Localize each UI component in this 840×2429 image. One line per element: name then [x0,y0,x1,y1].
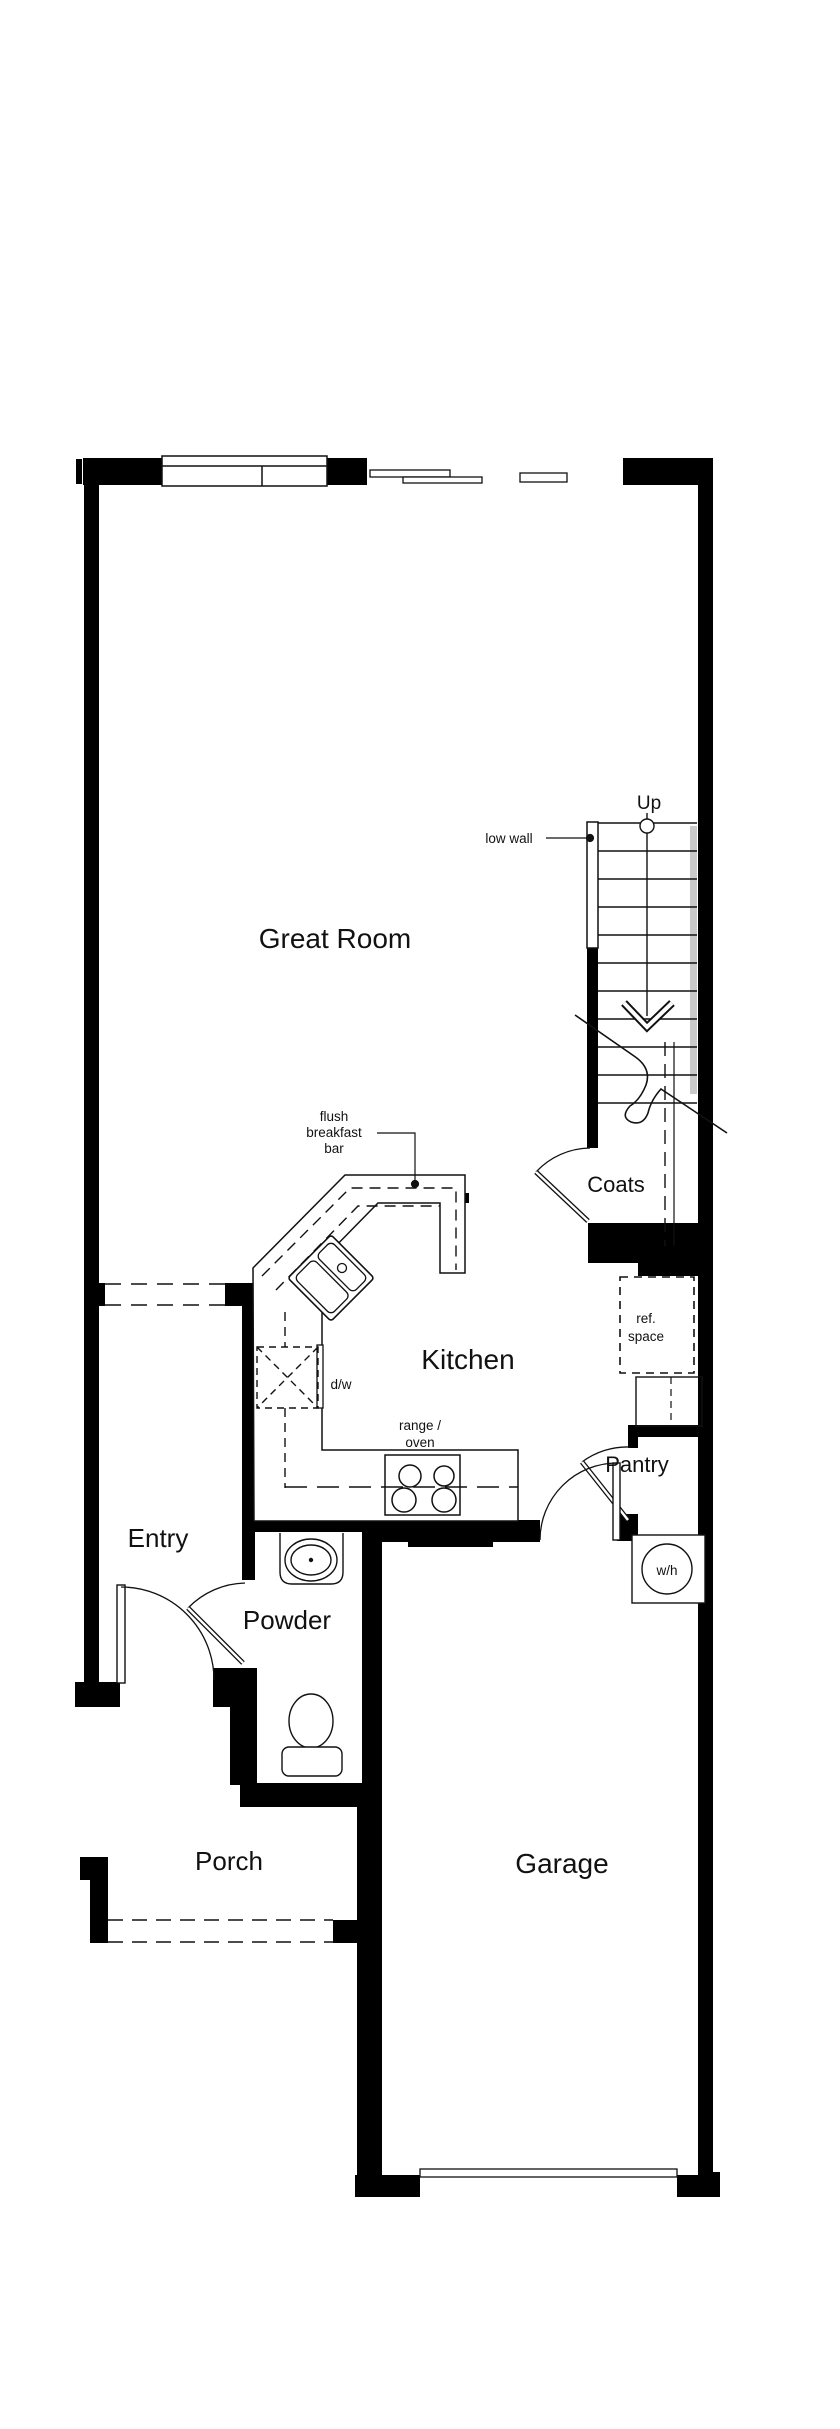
coats-closet [536,1042,674,1246]
breakfast-bar-leader [377,1133,415,1180]
breakfast-bar-leader-dot [412,1181,419,1188]
front-door-leaf [117,1585,125,1683]
bathroom-sink-drain [309,1558,313,1562]
porch-pier-left [90,1857,108,1943]
wall-garage-bottom-left [355,2175,420,2197]
toilet-tank [282,1747,342,1776]
label-water-heater: w/h [655,1563,677,1578]
range-burner [432,1488,456,1512]
label-up: Up [637,793,661,814]
slider-panel-3 [520,473,567,482]
label-range-2: oven [405,1435,434,1450]
label-kitchen: Kitchen [421,1344,514,1375]
powder-door-swing [188,1583,245,1608]
walls [75,458,720,2197]
wall-entry-bottom-left [75,1682,120,1707]
window-frame [162,456,327,486]
label-range-1: range / [399,1418,441,1433]
pantry-shelf-outline [636,1377,702,1426]
wall-entry-bottom-right [213,1668,257,1707]
label-flush-1: flush [320,1109,349,1124]
range-burner [392,1488,416,1512]
slider-panel-1 [370,470,450,477]
toilet-bowl [289,1694,333,1748]
doors [105,1284,677,2177]
refrigerator-space [620,1277,694,1373]
label-garage: Garage [515,1848,608,1879]
label-dishwasher: d/w [330,1377,351,1392]
porch-pier-right [333,1920,357,1943]
label-flush-3: bar [324,1141,344,1156]
ref-space-outline [620,1277,694,1373]
wall-ref-step [638,1262,700,1276]
powder-door-leaf-inner [188,1608,243,1663]
label-low-wall: low wall [485,831,532,846]
floor-plan-svg: Great Room Kitchen Garage Entry Powder P… [0,0,840,2429]
label-coats: Coats [587,1172,644,1197]
wall-garage-bottom-right [677,2175,713,2197]
wall-coats-bottom [588,1223,710,1263]
wall-entry-top-left [84,1283,105,1306]
label-great-room: Great Room [259,923,412,954]
wall-bottom-right-tick [713,2172,720,2197]
wall-porch-east [230,1707,257,1785]
front-door-swing [121,1587,214,1680]
low-wall-leader-dot [587,835,594,842]
label-ref-2: space [628,1329,664,1344]
floor-plan-page: Great Room Kitchen Garage Entry Powder P… [0,0,840,2429]
coats-door-swing [536,1148,590,1172]
leader-lines [377,835,594,1188]
label-flush-2: breakfast [306,1125,362,1140]
wall-pantry-top [628,1425,700,1437]
pantry-shelves [582,1377,702,1520]
wall-powder-bottom [240,1783,377,1807]
range-oven [385,1455,460,1515]
porch-steps [108,1920,333,1942]
wall-top-mid [327,458,367,485]
wall-garage-threshold [408,1540,493,1547]
wall-entry-top-right [225,1283,253,1306]
sink-faucet [338,1264,347,1273]
label-porch: Porch [195,1846,263,1876]
label-entry: Entry [128,1523,189,1553]
label-ref-1: ref. [636,1311,656,1326]
coats-door-leaf-inner [536,1172,588,1221]
wall-right [698,458,713,2197]
wall-garage-west [357,1807,382,2197]
label-pantry: Pantry [605,1452,669,1477]
slider-panel-2 [403,477,482,483]
wall-kitchen-bottom [375,1520,540,1542]
stair-handrail [690,826,697,1094]
wall-powder-east [362,1515,382,1807]
window [162,456,327,486]
label-powder: Powder [243,1605,331,1635]
porch-pier-left-foot [80,1857,90,1880]
range-burner [434,1466,454,1486]
garage-door-panel [420,2169,677,2177]
powder-fixtures [280,1533,343,1776]
wall-left [84,458,99,1682]
wall-corner-tick [76,459,82,484]
range-burner [399,1465,421,1487]
wall-stair-side [587,948,598,1148]
stair-start-symbol [640,819,654,833]
sliding-glass-door [370,470,567,483]
